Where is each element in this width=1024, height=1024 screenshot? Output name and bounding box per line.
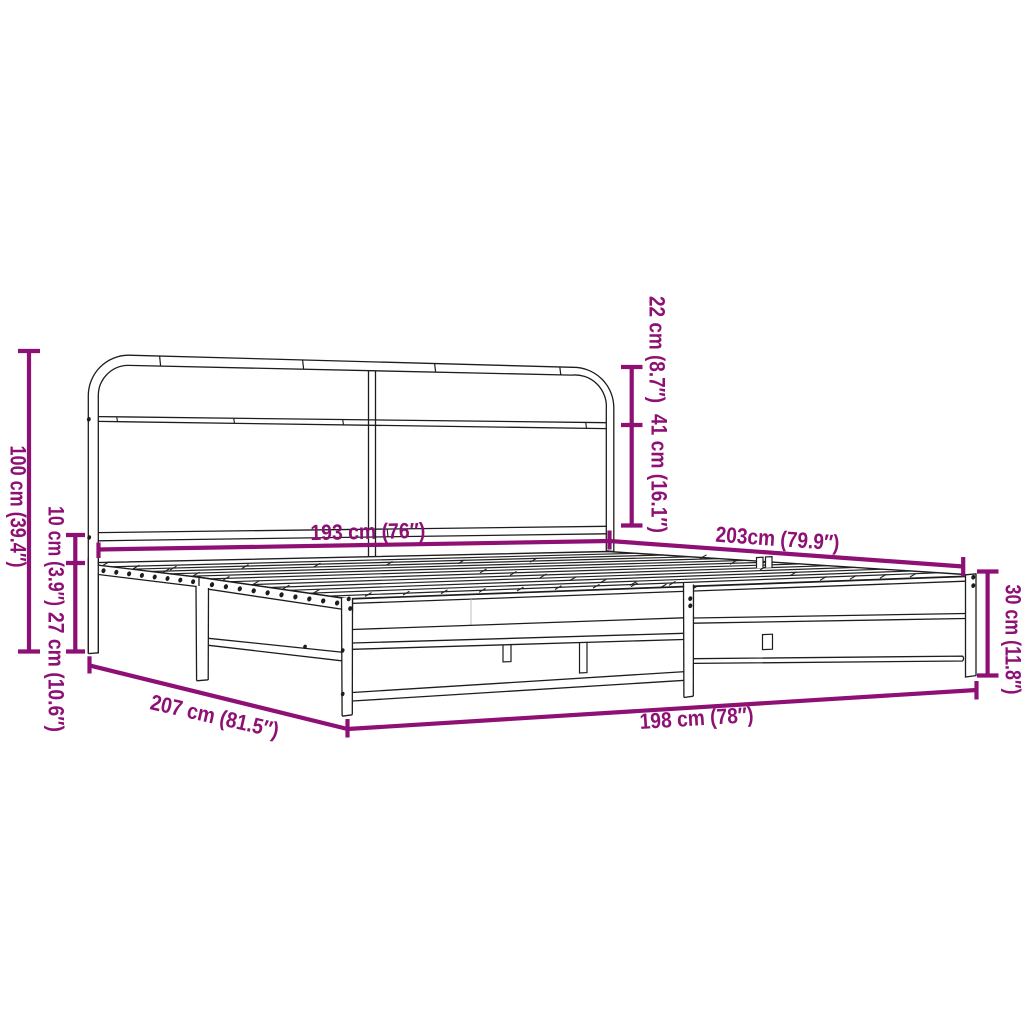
svg-text:193 cm (76″): 193 cm (76″) (310, 518, 425, 545)
svg-text:22 cm (8.7″): 22 cm (8.7″) (644, 296, 669, 403)
svg-text:27 cm (10.6″): 27 cm (10.6″) (44, 612, 69, 732)
svg-text:41 cm (16.1″): 41 cm (16.1″) (647, 414, 672, 533)
svg-text:10 cm (3.9″): 10 cm (3.9″) (44, 506, 69, 606)
svg-text:100 cm (39.4″): 100 cm (39.4″) (5, 446, 30, 568)
svg-text:30 cm (11.8″): 30 cm (11.8″) (1000, 585, 1024, 695)
